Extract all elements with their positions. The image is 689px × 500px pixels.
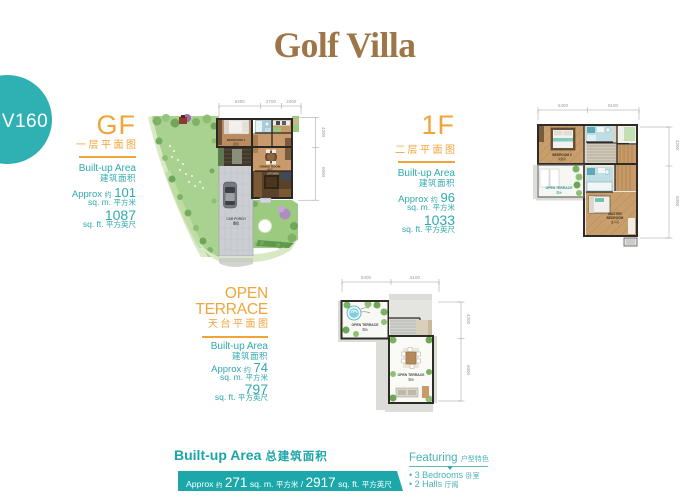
svg-text:6000: 6000 <box>321 167 325 178</box>
svg-text:露台: 露台 <box>556 190 562 194</box>
svg-text:OPEN TERRACE: OPEN TERRACE <box>398 373 426 377</box>
svg-text:5100: 5100 <box>410 275 421 280</box>
svg-text:5400: 5400 <box>361 275 372 280</box>
svg-text:5400: 5400 <box>558 103 569 108</box>
svg-text:5100: 5100 <box>608 103 619 108</box>
svg-text:4200: 4200 <box>675 140 680 151</box>
svg-text:4200: 4200 <box>466 314 471 325</box>
svg-text:主人房: 主人房 <box>611 220 620 224</box>
svg-text:OPEN TERRACE: OPEN TERRACE <box>352 323 380 327</box>
svg-text:KITCHEN: KITCHEN <box>267 172 279 176</box>
svg-text:次卧房: 次卧房 <box>558 157 567 161</box>
svg-text:2400: 2400 <box>286 99 297 104</box>
svg-text:露台: 露台 <box>362 327 368 331</box>
svg-text:6000: 6000 <box>466 365 471 376</box>
svg-text:OPEN TERRACE: OPEN TERRACE <box>546 186 574 190</box>
svg-text:卧室: 卧室 <box>233 142 239 146</box>
svg-text:CAR PORCH: CAR PORCH <box>226 217 246 221</box>
svg-text:5400: 5400 <box>235 99 246 104</box>
svg-text:4200: 4200 <box>321 127 325 138</box>
svg-text:車位: 車位 <box>233 221 240 226</box>
svg-text:露台: 露台 <box>408 377 414 381</box>
svg-text:6000: 6000 <box>675 196 680 207</box>
svg-text:2700: 2700 <box>266 99 277 104</box>
